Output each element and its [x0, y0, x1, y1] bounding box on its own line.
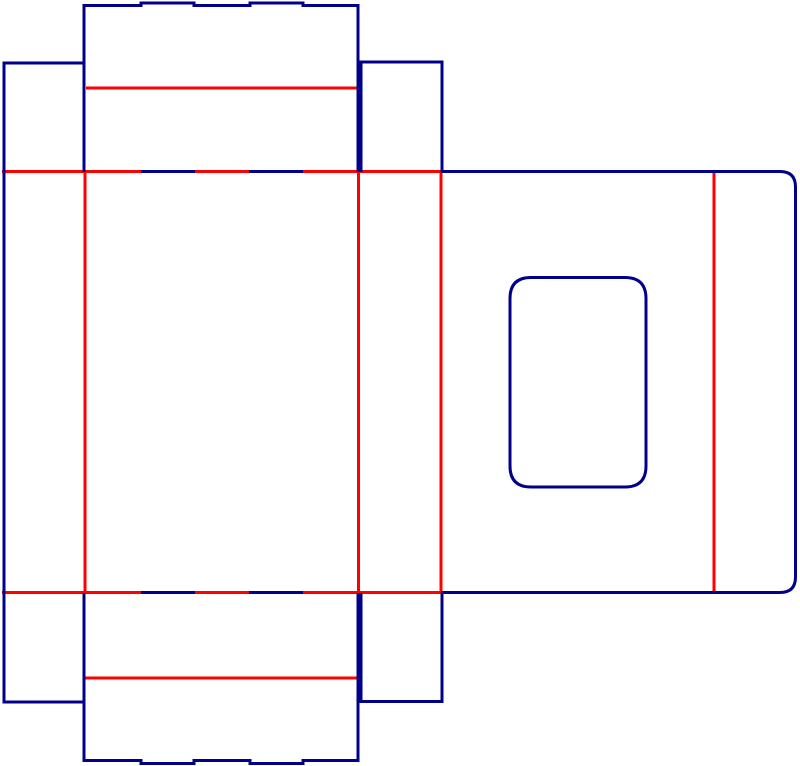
left-glue-flap-outline	[4, 63, 85, 702]
top-right-flap-outline	[361, 62, 442, 172]
bottom-right-flap-outline	[361, 593, 442, 702]
dieline-svg	[0, 0, 800, 766]
right-panel-outline	[441, 172, 796, 593]
window-cutout	[510, 278, 646, 488]
dieline-canvas	[0, 0, 800, 766]
